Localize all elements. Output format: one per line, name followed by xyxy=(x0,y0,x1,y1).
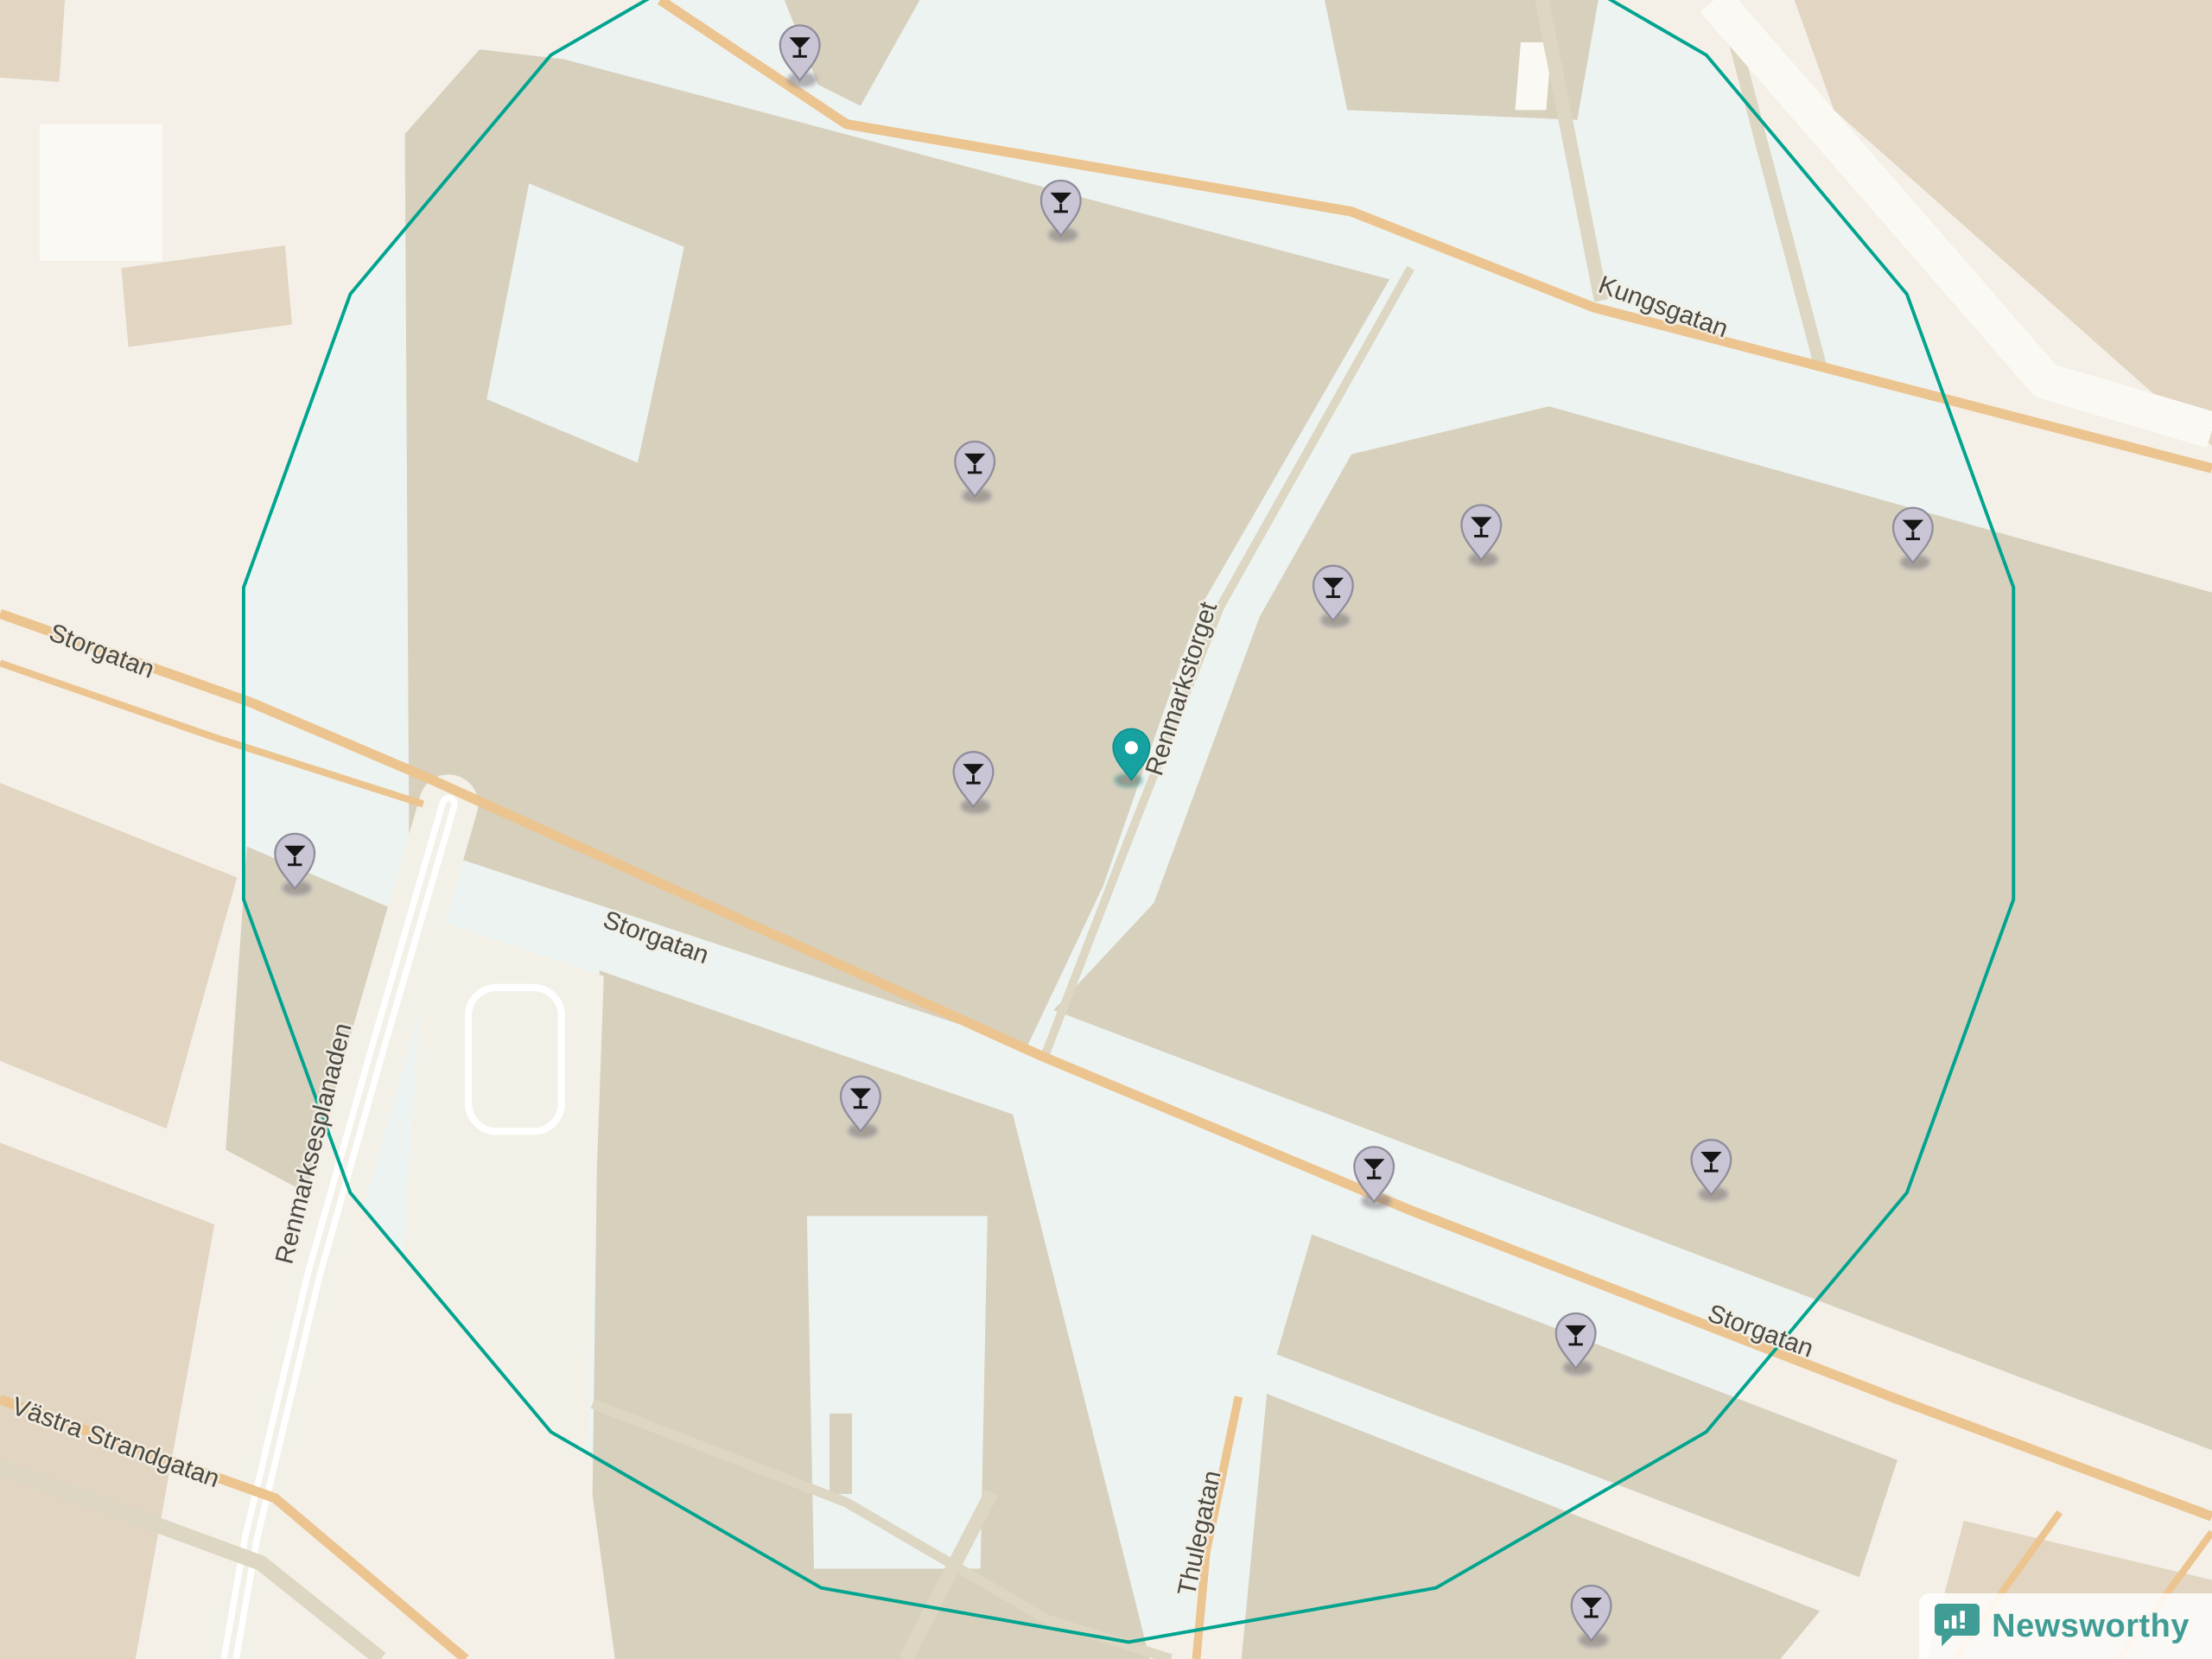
newsworthy-logo: Newsworthy xyxy=(1919,1593,2212,1659)
newsworthy-icon xyxy=(1935,1604,1980,1649)
building-block xyxy=(0,0,65,82)
map-canvas[interactable]: StorgatanKungsgatanRenmarkstorgetStorgat… xyxy=(0,0,2212,1659)
map-stage: StorgatanKungsgatanRenmarkstorgetStorgat… xyxy=(0,0,2212,1659)
building-block xyxy=(40,124,162,261)
newsworthy-wordmark: Newsworthy xyxy=(1992,1608,2190,1645)
building-block xyxy=(807,1216,988,1568)
building-block xyxy=(829,1414,852,1494)
